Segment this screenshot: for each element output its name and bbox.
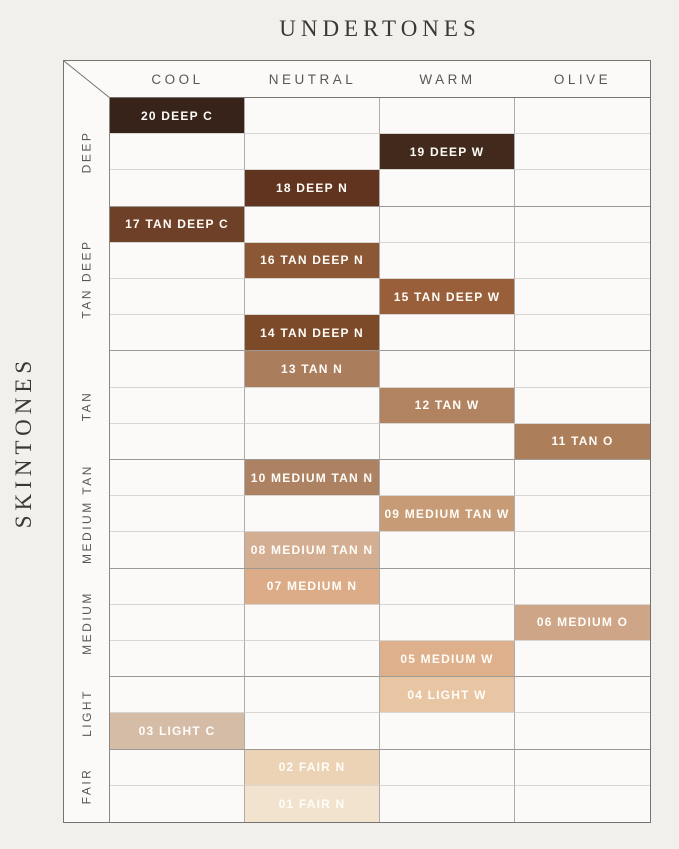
shade-cell: 05 MEDIUM W	[380, 641, 515, 677]
empty-cell	[380, 460, 515, 496]
shade-cell-label: 09 MEDIUM TAN W	[384, 507, 509, 521]
skintone-group-label: TAN	[64, 351, 109, 460]
empty-cell	[515, 207, 650, 243]
skintone-group-label: MEDIUM TAN	[64, 460, 109, 569]
undertone-header-row: COOLNEUTRALWARMOLIVE	[64, 61, 650, 98]
column-header-olive: OLIVE	[515, 61, 650, 98]
shade-cell-label: 02 FAIR N	[279, 760, 346, 774]
empty-cell	[110, 496, 245, 532]
shade-cell-label: 18 DEEP N	[276, 181, 348, 195]
empty-cell	[110, 243, 245, 279]
skintone-group-label-text: TAN DEEP	[80, 239, 94, 318]
skintone-group-label-text: DEEP	[80, 131, 94, 174]
empty-cell	[110, 424, 245, 460]
shade-cell: 06 MEDIUM O	[515, 605, 650, 641]
shade-cell: 09 MEDIUM TAN W	[380, 496, 515, 532]
column-header-warm: WARM	[380, 61, 515, 98]
shade-cell: 10 MEDIUM TAN N	[245, 460, 380, 496]
skintones-axis-title-text: SKINTONES	[11, 355, 37, 527]
shade-matrix-chart: COOLNEUTRALWARMOLIVE DEEPTAN DEEPTANMEDI…	[63, 60, 651, 823]
empty-cell	[515, 750, 650, 786]
chart-body: DEEPTAN DEEPTANMEDIUM TANMEDIUMLIGHTFAIR…	[64, 98, 650, 822]
empty-cell	[245, 677, 380, 713]
empty-cell	[245, 279, 380, 315]
empty-cell	[110, 786, 245, 822]
column-header-cool: COOL	[110, 61, 245, 98]
shade-cell: 03 LIGHT C	[110, 713, 245, 749]
empty-cell	[380, 243, 515, 279]
empty-cell	[245, 388, 380, 424]
shade-cell-label: 03 LIGHT C	[139, 724, 216, 738]
empty-cell	[380, 315, 515, 351]
empty-cell	[380, 532, 515, 568]
shade-cell-label: 13 TAN N	[281, 362, 343, 376]
shade-cell: 07 MEDIUM N	[245, 569, 380, 605]
empty-cell	[515, 351, 650, 387]
empty-cell	[110, 460, 245, 496]
skintone-group-label-text: LIGHT	[80, 689, 94, 737]
shade-cell-label: 17 TAN DEEP C	[125, 217, 229, 231]
skintone-group-label: DEEP	[64, 98, 109, 207]
empty-cell	[110, 677, 245, 713]
empty-cell	[110, 351, 245, 387]
skintone-group-label: LIGHT	[64, 677, 109, 749]
shade-cell-label: 07 MEDIUM N	[267, 579, 358, 593]
skintone-group-label-text: TAN	[79, 390, 93, 421]
empty-cell	[380, 424, 515, 460]
shade-cell-label: 14 TAN DEEP N	[260, 326, 364, 340]
empty-cell	[515, 532, 650, 568]
empty-cell	[110, 170, 245, 206]
shade-cell: 13 TAN N	[245, 351, 380, 387]
shade-cell-label: 04 LIGHT W	[407, 688, 486, 702]
shade-cell: 11 TAN O	[515, 424, 650, 460]
shade-cell-label: 10 MEDIUM TAN N	[251, 471, 373, 485]
shade-cell-label: 11 TAN O	[551, 434, 613, 448]
shade-cell: 18 DEEP N	[245, 170, 380, 206]
shade-cell-label: 15 TAN DEEP W	[394, 290, 501, 304]
shade-cell-label: 20 DEEP C	[141, 109, 213, 123]
empty-cell	[245, 641, 380, 677]
empty-cell	[515, 786, 650, 822]
empty-cell	[515, 641, 650, 677]
shade-cell-label: 19 DEEP W	[410, 145, 485, 159]
empty-cell	[110, 134, 245, 170]
shade-grid: 20 DEEP C19 DEEP W18 DEEP N17 TAN DEEP C…	[110, 98, 650, 822]
skintone-group-label: MEDIUM	[64, 569, 109, 678]
empty-cell	[110, 569, 245, 605]
empty-cell	[245, 98, 380, 134]
shade-cell-label: 16 TAN DEEP N	[260, 253, 364, 267]
empty-cell	[110, 279, 245, 315]
empty-cell	[380, 98, 515, 134]
shade-cell-label: 05 MEDIUM W	[400, 652, 493, 666]
empty-cell	[245, 713, 380, 749]
shade-cell: 02 FAIR N	[245, 750, 380, 786]
skintone-group-labels: DEEPTAN DEEPTANMEDIUM TANMEDIUMLIGHTFAIR	[64, 98, 110, 822]
shade-cell: 16 TAN DEEP N	[245, 243, 380, 279]
shade-cell-label: 12 TAN W	[415, 398, 480, 412]
empty-cell	[515, 279, 650, 315]
empty-cell	[245, 134, 380, 170]
undertones-axis-title: UNDERTONES	[109, 16, 651, 42]
shade-cell-label: 01 FAIR N	[279, 797, 346, 811]
shade-cell: 20 DEEP C	[110, 98, 245, 134]
empty-cell	[380, 750, 515, 786]
empty-cell	[110, 750, 245, 786]
empty-cell	[380, 605, 515, 641]
skintone-group-label: TAN DEEP	[64, 207, 109, 352]
empty-cell	[380, 351, 515, 387]
empty-cell	[515, 677, 650, 713]
empty-cell	[380, 170, 515, 206]
empty-cell	[515, 315, 650, 351]
empty-cell	[380, 207, 515, 243]
shade-cell: 15 TAN DEEP W	[380, 279, 515, 315]
empty-cell	[110, 605, 245, 641]
column-header-neutral: NEUTRAL	[245, 61, 380, 98]
empty-cell	[515, 388, 650, 424]
skintone-group-label: FAIR	[64, 750, 109, 822]
skintone-group-label-text: MEDIUM	[80, 591, 94, 655]
empty-cell	[515, 134, 650, 170]
empty-cell	[110, 388, 245, 424]
empty-cell	[515, 98, 650, 134]
corner-diagonal-line	[64, 61, 110, 98]
empty-cell	[380, 786, 515, 822]
empty-cell	[515, 243, 650, 279]
empty-cell	[515, 170, 650, 206]
empty-cell	[110, 532, 245, 568]
empty-cell	[515, 569, 650, 605]
shade-cell-label: 08 MEDIUM TAN N	[251, 543, 373, 557]
skintones-axis-title: SKINTONES	[2, 60, 46, 823]
shade-cell: 19 DEEP W	[380, 134, 515, 170]
empty-cell	[515, 713, 650, 749]
shade-cell: 04 LIGHT W	[380, 677, 515, 713]
empty-cell	[245, 207, 380, 243]
empty-cell	[380, 713, 515, 749]
shade-cell: 14 TAN DEEP N	[245, 315, 380, 351]
skintone-group-label-text: MEDIUM TAN	[80, 464, 94, 564]
shade-cell-label: 06 MEDIUM O	[537, 615, 628, 629]
empty-cell	[245, 605, 380, 641]
shade-cell: 12 TAN W	[380, 388, 515, 424]
shade-cell: 17 TAN DEEP C	[110, 207, 245, 243]
empty-cell	[380, 569, 515, 605]
empty-cell	[245, 496, 380, 532]
skintone-group-label-text: FAIR	[79, 767, 93, 804]
empty-cell	[110, 315, 245, 351]
shade-cell: 08 MEDIUM TAN N	[245, 532, 380, 568]
empty-cell	[110, 641, 245, 677]
empty-cell	[515, 460, 650, 496]
empty-cell	[245, 424, 380, 460]
empty-cell	[515, 496, 650, 532]
shade-cell: 01 FAIR N	[245, 786, 380, 822]
